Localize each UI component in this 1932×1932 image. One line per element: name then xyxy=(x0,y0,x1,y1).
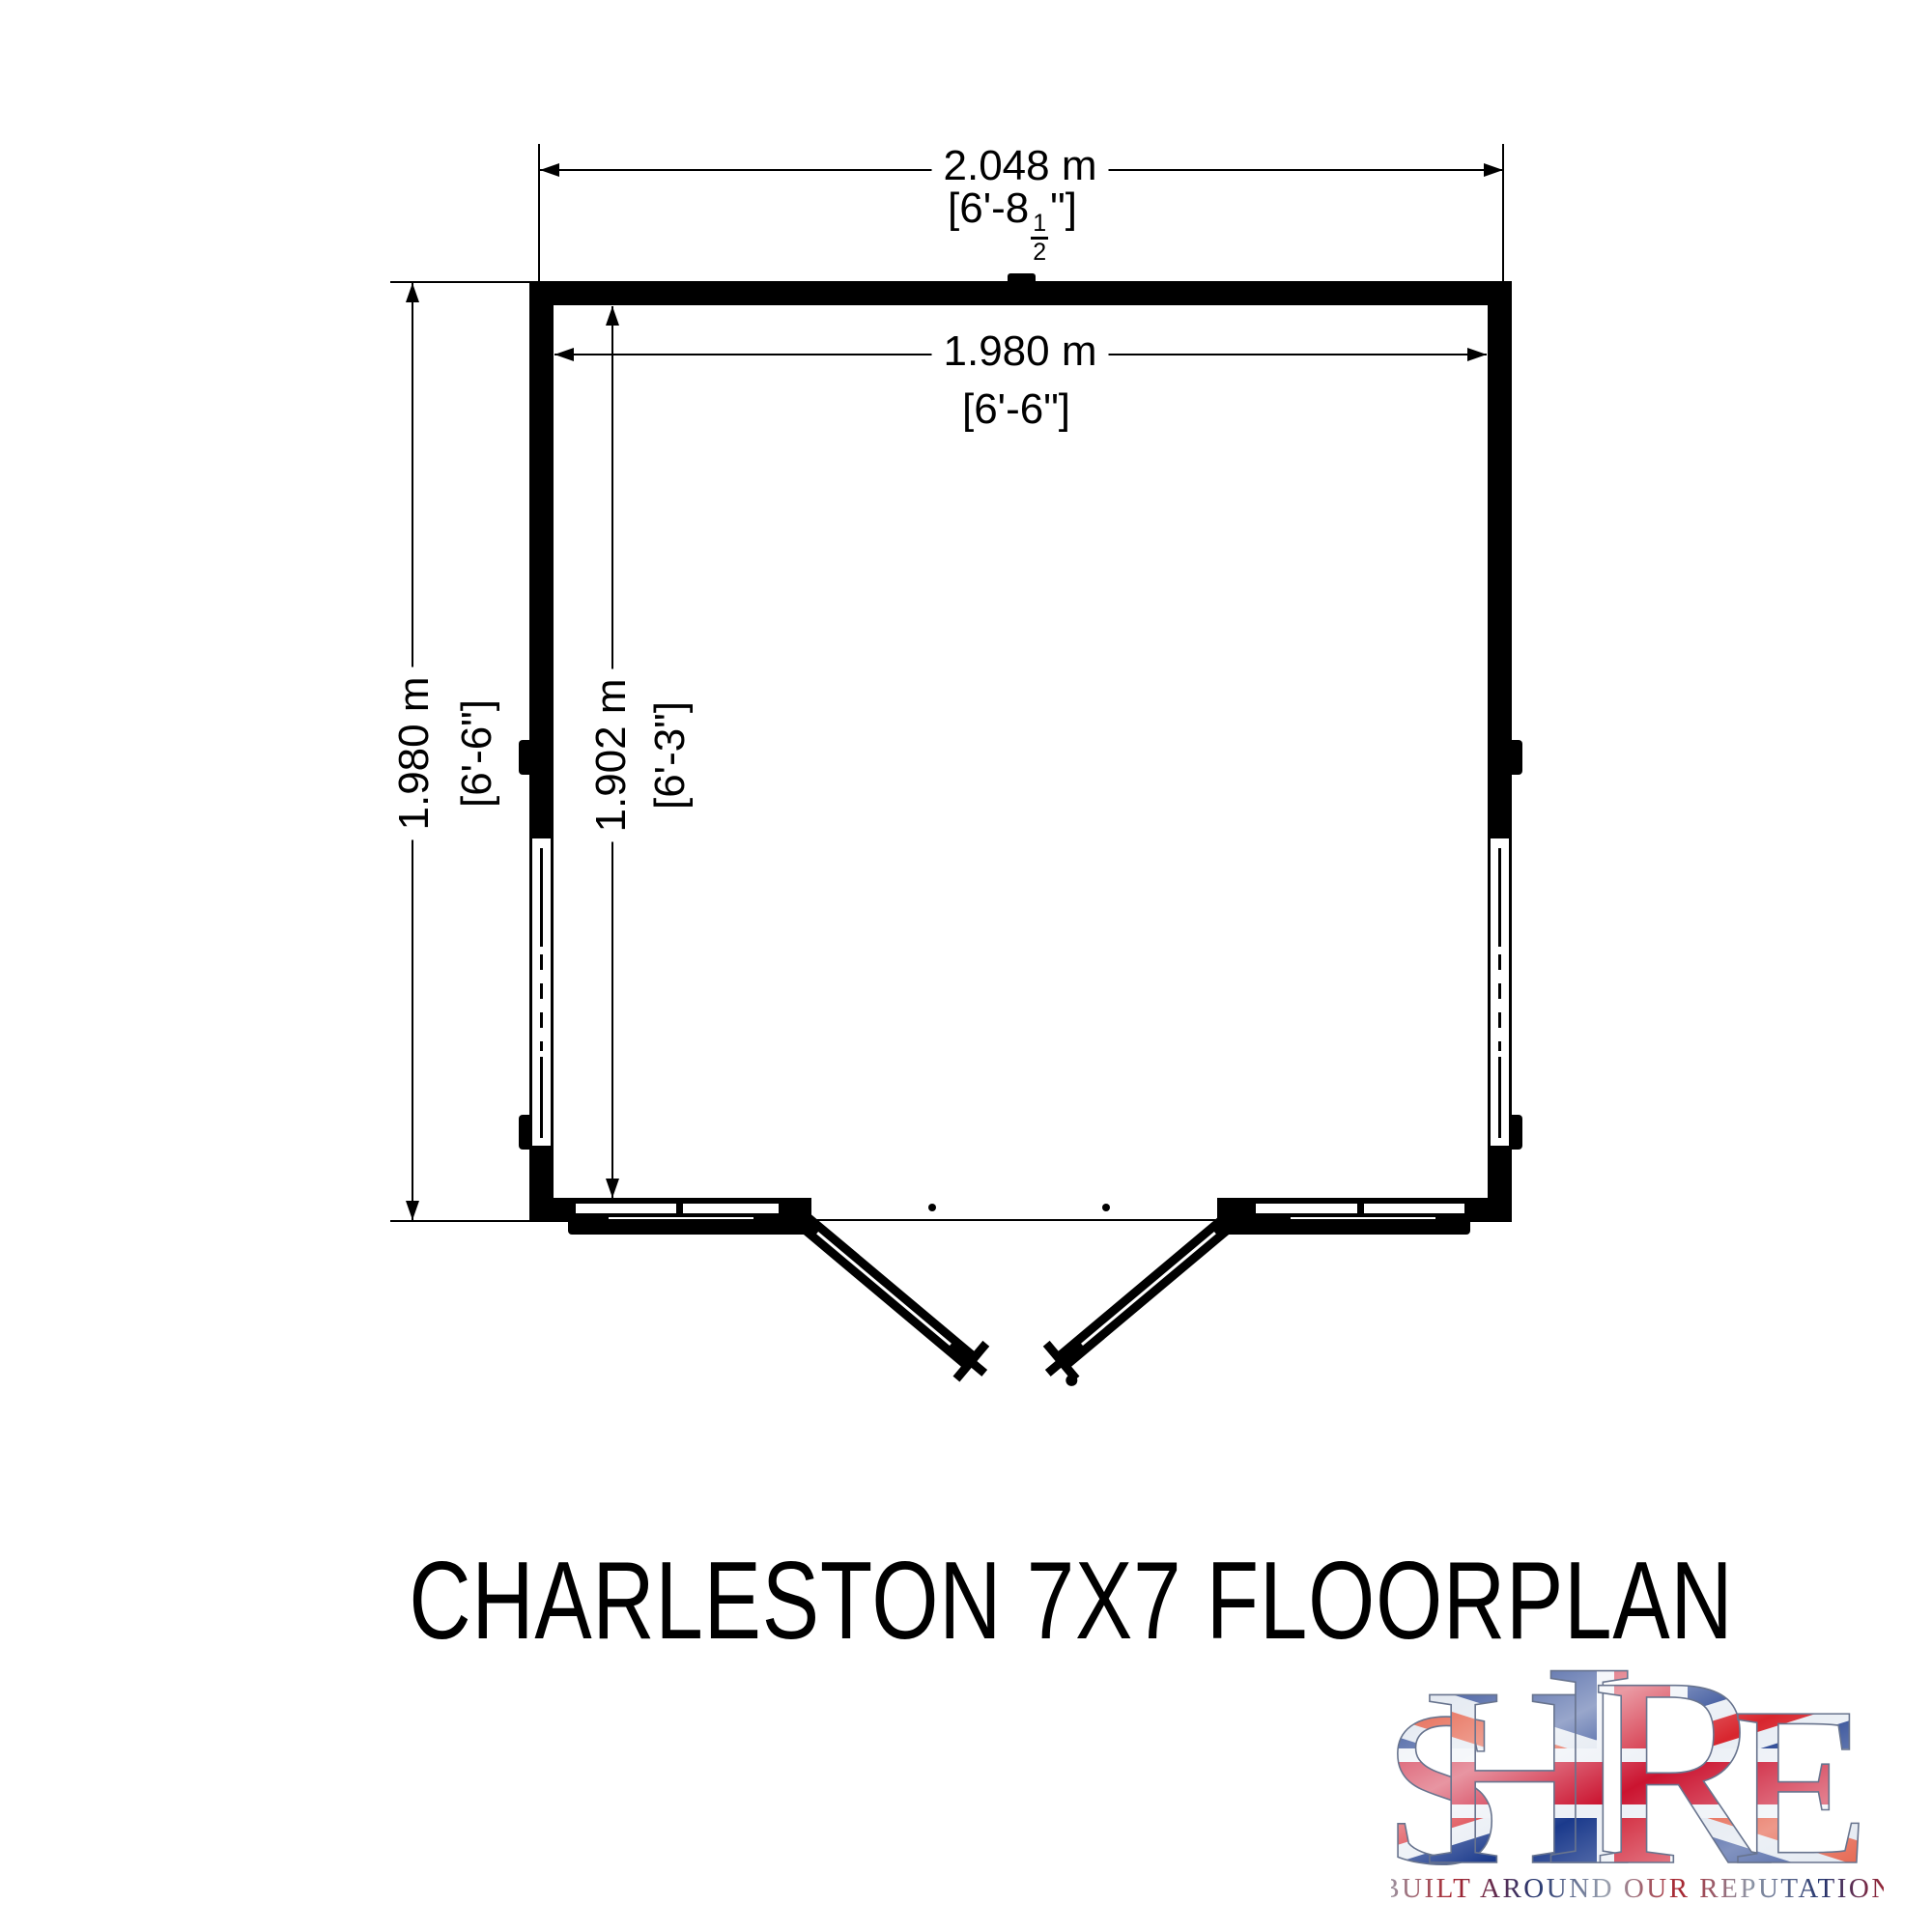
dim-top-inner-arrow-right xyxy=(1467,348,1487,361)
shire-logo: S H I R E BUILT AROUND OUR REPUTATION xyxy=(1391,1658,1884,1913)
window-left-glazing-dashed xyxy=(540,954,543,1051)
dim-left-outer-ext-bottom xyxy=(390,1220,529,1222)
door-left-handle-nub xyxy=(970,1360,987,1377)
page-title-text: CHARLESTON 7X7 FLOORPLAN xyxy=(409,1538,1733,1664)
window-right-frame-top xyxy=(1511,740,1522,775)
door-stop-dot-left xyxy=(928,1204,936,1211)
window-right-glazing-top xyxy=(1498,848,1501,947)
logo-tagline: BUILT AROUND OUR REPUTATION xyxy=(1391,1873,1884,1904)
dim-left-outer-metric: 1.980 m xyxy=(389,668,440,840)
dim-top-outer-arrow-right xyxy=(1484,163,1503,177)
window-bottom-left-glazing xyxy=(609,1217,753,1219)
window-right-glazing-bottom xyxy=(1498,1057,1501,1138)
dim-top-inner-arrow-left xyxy=(554,348,574,361)
dim-left-outer-imperial: [6'-6"] xyxy=(452,690,502,817)
window-bottom-left-mullion xyxy=(676,1204,683,1213)
dim-left-inner-arrow-top xyxy=(606,306,619,326)
dim-top-outer-fraction: 12 xyxy=(1031,212,1048,265)
window-right-glazing-dashed xyxy=(1498,954,1501,1051)
dim-left-inner-arrow-bottom xyxy=(606,1179,619,1198)
window-left-glazing-bottom xyxy=(540,1057,543,1138)
dim-left-inner-metric: 1.902 m xyxy=(586,669,637,842)
door-leaf-right xyxy=(1053,1211,1237,1371)
window-left-glazing-top xyxy=(540,848,543,947)
door-leaf-left-line xyxy=(816,1232,952,1346)
door-threshold-line xyxy=(792,1219,1236,1221)
window-bottom-right-frame xyxy=(1241,1222,1470,1235)
window-left-frame-bottom xyxy=(519,1115,530,1150)
dim-top-outer-arrow-left xyxy=(540,163,559,177)
dim-left-inner-imperial: [6'-3"] xyxy=(645,692,696,819)
dim-left-outer-arrow-top xyxy=(406,283,419,302)
dim-left-outer-arrow-bottom xyxy=(406,1201,419,1220)
dim-top-inner-metric: 1.980 m xyxy=(932,327,1109,377)
window-bottom-right-glazing xyxy=(1291,1217,1435,1219)
dim-top-outer-imp-prefix: [6'-8 xyxy=(948,185,1029,232)
fraction-numerator: 1 xyxy=(1031,212,1048,240)
wall-top xyxy=(529,281,1512,305)
dim-top-outer-imperial: [6'-812"] xyxy=(944,184,1081,267)
door-leaf-right-line xyxy=(1081,1232,1216,1346)
door-stop-dot-right xyxy=(1102,1204,1110,1211)
dim-top-inner-imperial: [6'-6"] xyxy=(958,384,1074,435)
wall-top-notch xyxy=(1008,273,1036,282)
page-title: CHARLESTON 7X7 FLOORPLAN xyxy=(222,1538,1748,1664)
door-leaf-left xyxy=(795,1211,980,1371)
dim-top-outer-imp-suffix: "] xyxy=(1050,185,1077,232)
window-bottom-right-mullion xyxy=(1357,1204,1364,1213)
fraction-denominator: 2 xyxy=(1033,240,1046,265)
window-left-frame-top xyxy=(519,740,530,775)
door-left-handle-bar xyxy=(953,1341,990,1382)
floorplan-page: 2.048 m [6'-812"] 1.980 m [6'-6"] 1.980 … xyxy=(0,0,1932,1932)
window-right-frame-bottom xyxy=(1511,1115,1522,1150)
window-bottom-left-frame xyxy=(568,1222,787,1235)
